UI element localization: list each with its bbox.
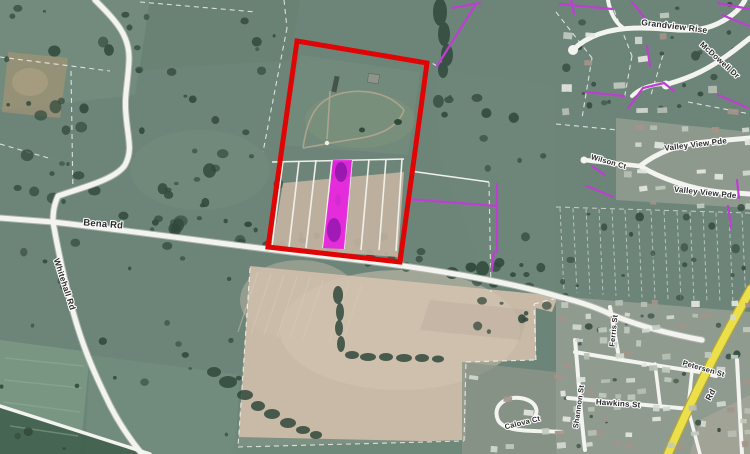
tree	[607, 100, 611, 104]
house	[744, 380, 750, 385]
tree	[519, 263, 523, 267]
house	[598, 327, 607, 333]
house	[598, 429, 604, 435]
house	[584, 60, 592, 66]
house	[649, 365, 657, 371]
house	[664, 377, 672, 382]
tree	[731, 244, 740, 254]
tree	[189, 95, 197, 103]
tree	[182, 352, 189, 358]
tree	[34, 110, 47, 120]
house	[642, 328, 650, 333]
tree	[217, 149, 228, 158]
tree	[680, 243, 688, 252]
house	[702, 314, 711, 319]
tree	[536, 263, 545, 272]
tree	[691, 258, 697, 263]
tree	[640, 315, 643, 318]
tree	[523, 272, 529, 277]
tree	[730, 273, 734, 277]
tree	[183, 95, 187, 98]
tree	[441, 112, 448, 118]
tree	[566, 257, 575, 263]
tree	[66, 162, 69, 166]
tree	[659, 51, 664, 55]
tree	[162, 242, 172, 250]
tree	[590, 415, 593, 418]
house	[562, 108, 570, 115]
tree	[61, 199, 66, 204]
house	[637, 388, 646, 394]
house	[691, 431, 699, 436]
house	[660, 33, 667, 40]
tree	[236, 376, 242, 381]
tree	[444, 96, 453, 103]
tree	[62, 125, 71, 135]
tree	[717, 428, 721, 432]
tree	[359, 128, 365, 133]
tree	[43, 259, 48, 263]
tree	[257, 66, 266, 75]
tree	[473, 322, 482, 331]
tree	[244, 222, 252, 228]
tree	[394, 119, 402, 125]
tree	[677, 104, 682, 108]
house	[613, 82, 625, 89]
tree	[48, 45, 60, 56]
house	[575, 338, 583, 342]
house	[635, 142, 641, 146]
house	[740, 419, 747, 424]
tree	[4, 56, 9, 62]
tree	[118, 212, 128, 220]
tree	[167, 68, 177, 76]
house	[650, 125, 657, 130]
tree	[144, 14, 150, 20]
tree	[710, 74, 717, 80]
cul-de-sac	[568, 45, 578, 55]
house	[615, 300, 623, 306]
tree	[510, 272, 516, 277]
tree	[13, 5, 22, 12]
tree	[487, 329, 491, 334]
tree	[485, 165, 491, 172]
house	[588, 430, 597, 436]
house	[624, 327, 630, 334]
house	[714, 174, 723, 180]
tree	[194, 177, 201, 182]
tree	[676, 295, 684, 301]
house	[697, 169, 706, 173]
tree	[481, 108, 491, 118]
tree	[211, 116, 219, 124]
tree	[168, 223, 178, 234]
house	[616, 353, 625, 359]
house	[653, 405, 660, 412]
tree	[737, 204, 744, 211]
house	[682, 126, 689, 131]
house	[692, 314, 698, 318]
tree	[252, 37, 262, 47]
house	[745, 302, 750, 307]
tree	[21, 149, 34, 161]
tree	[648, 313, 655, 318]
tree	[682, 262, 687, 267]
tree	[227, 277, 231, 281]
tree	[164, 191, 173, 199]
house	[705, 352, 712, 358]
house	[585, 32, 595, 37]
house	[625, 312, 631, 316]
tree	[136, 69, 141, 74]
tree	[154, 215, 163, 222]
tree	[524, 311, 528, 315]
house	[572, 324, 581, 330]
tree	[585, 323, 593, 329]
tree	[75, 122, 87, 133]
tree	[49, 171, 54, 176]
house	[561, 302, 568, 308]
tree	[139, 127, 145, 134]
tree	[128, 267, 131, 271]
tree	[99, 337, 107, 344]
tree	[621, 274, 625, 277]
tree	[591, 82, 596, 87]
tree	[727, 30, 732, 34]
tree	[20, 248, 27, 257]
house	[625, 432, 632, 437]
house	[641, 302, 648, 307]
house	[562, 416, 570, 422]
tree	[670, 36, 673, 39]
house	[651, 300, 658, 307]
house	[697, 203, 705, 208]
tree	[521, 232, 530, 241]
house	[624, 171, 632, 177]
tree	[29, 187, 39, 197]
house	[728, 430, 737, 437]
tree	[104, 44, 114, 56]
house	[603, 418, 609, 422]
tree	[682, 83, 686, 87]
tree	[479, 135, 488, 142]
tree	[26, 101, 31, 106]
tree	[651, 251, 656, 256]
field-patch	[130, 130, 270, 210]
house	[742, 440, 749, 447]
tree	[255, 47, 259, 51]
house	[588, 407, 595, 412]
tree	[180, 256, 185, 260]
tree	[682, 372, 686, 376]
house	[666, 315, 674, 319]
tree	[134, 45, 141, 50]
house	[745, 203, 750, 210]
house	[588, 389, 593, 394]
house	[586, 442, 593, 447]
tree	[517, 158, 522, 163]
tree	[509, 113, 519, 123]
house	[584, 353, 590, 360]
tree	[70, 239, 80, 247]
parcel-shading	[327, 218, 341, 242]
tree	[500, 302, 504, 305]
tree	[562, 63, 570, 72]
house	[554, 374, 564, 379]
house	[562, 84, 572, 92]
house	[555, 430, 565, 435]
house	[577, 377, 586, 382]
tree	[601, 223, 607, 231]
tree	[225, 433, 228, 437]
house	[637, 169, 647, 173]
tree	[601, 100, 607, 105]
tree	[121, 12, 129, 18]
tree	[14, 185, 22, 191]
tree	[476, 261, 489, 276]
house	[503, 396, 512, 402]
house	[744, 138, 750, 145]
house	[506, 444, 514, 449]
tree	[6, 103, 10, 106]
tree	[635, 212, 644, 221]
parcel-shading	[335, 194, 341, 206]
house	[688, 405, 696, 411]
tree	[542, 302, 552, 310]
house	[727, 407, 734, 412]
tree	[174, 182, 179, 186]
house	[560, 390, 565, 396]
tree	[73, 171, 85, 179]
house	[712, 127, 719, 133]
house	[624, 351, 632, 355]
house	[564, 364, 572, 368]
tree	[576, 284, 579, 287]
tree	[466, 262, 477, 272]
tree	[683, 214, 690, 221]
house	[660, 13, 669, 19]
tree	[695, 420, 701, 426]
tree	[9, 14, 15, 19]
house	[676, 445, 684, 450]
tree	[613, 378, 617, 381]
suburb-block	[462, 362, 556, 454]
house	[662, 367, 671, 373]
map-canvas[interactable]: Bena Rd Whitehall Rd Grandview Rise McDo…	[0, 0, 750, 454]
tree	[416, 256, 423, 263]
tree	[211, 165, 220, 172]
tree	[58, 98, 65, 105]
tree	[582, 92, 585, 95]
tree	[188, 367, 192, 370]
tree	[240, 17, 248, 24]
tree	[75, 384, 80, 388]
tree	[540, 153, 546, 158]
tree	[113, 376, 117, 380]
tree	[249, 154, 254, 158]
house	[700, 421, 706, 428]
cul-de-sac	[581, 157, 588, 164]
tree	[24, 427, 33, 436]
tree	[417, 248, 426, 255]
tree	[140, 378, 149, 385]
tree	[197, 216, 202, 220]
tree	[62, 447, 66, 450]
house	[678, 323, 685, 328]
tree	[242, 129, 249, 135]
house	[563, 32, 573, 39]
house	[559, 316, 566, 322]
tree	[560, 279, 565, 284]
house	[636, 124, 645, 129]
bare-earth-patch	[12, 68, 48, 96]
tree	[79, 103, 88, 113]
tree	[477, 297, 487, 305]
tree	[164, 320, 170, 326]
house	[708, 86, 717, 93]
house	[490, 446, 497, 453]
tree	[228, 338, 233, 343]
house	[635, 37, 642, 44]
house	[626, 443, 633, 449]
tree	[15, 433, 21, 440]
house	[542, 428, 549, 435]
house	[742, 127, 750, 132]
shed	[367, 73, 379, 83]
house	[731, 355, 738, 359]
tree	[578, 19, 586, 25]
tree	[587, 213, 591, 216]
house	[626, 378, 635, 383]
tree	[697, 92, 703, 97]
house	[657, 107, 667, 113]
house	[727, 108, 738, 115]
house	[663, 406, 671, 411]
tree	[59, 161, 65, 166]
tree	[675, 6, 680, 9]
house	[557, 442, 566, 449]
tree	[127, 24, 133, 30]
tree	[673, 379, 679, 384]
tree	[200, 203, 205, 207]
house	[585, 314, 591, 320]
tree	[741, 266, 745, 271]
house	[641, 363, 646, 367]
house	[601, 379, 610, 383]
parcel-shading	[335, 162, 347, 182]
house	[730, 314, 736, 320]
house	[691, 301, 699, 307]
tree	[223, 219, 227, 224]
tree	[716, 323, 721, 328]
tree	[175, 341, 182, 347]
tree	[273, 34, 276, 37]
tree	[31, 324, 35, 328]
house	[743, 327, 750, 332]
house	[636, 340, 641, 346]
tree	[472, 94, 483, 102]
tree	[576, 444, 581, 449]
house	[744, 408, 750, 414]
tree	[708, 222, 715, 229]
house	[600, 337, 608, 343]
tree	[433, 95, 444, 108]
house	[654, 142, 664, 149]
house	[650, 201, 656, 205]
tree	[192, 149, 197, 154]
tree	[578, 343, 582, 346]
house	[668, 443, 675, 448]
tree	[629, 232, 633, 237]
house	[615, 442, 621, 446]
tree	[691, 51, 700, 61]
tree	[586, 102, 592, 109]
water-tank	[325, 141, 329, 145]
field-patch	[140, 0, 300, 70]
tree	[254, 227, 258, 232]
tree	[43, 10, 46, 12]
house	[662, 354, 671, 360]
house	[743, 170, 750, 176]
house	[731, 300, 738, 306]
house	[652, 417, 661, 422]
house	[636, 108, 648, 113]
tree	[518, 314, 526, 323]
